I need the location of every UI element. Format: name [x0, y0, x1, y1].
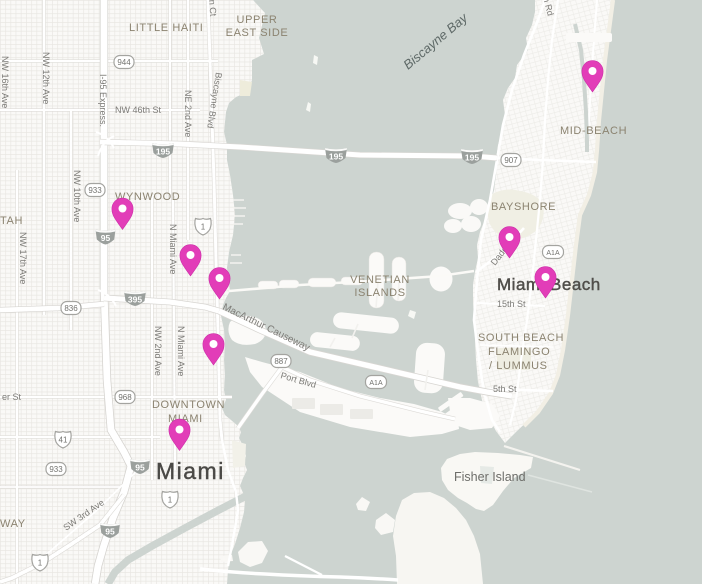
svg-text:EAST SIDE: EAST SIDE	[226, 27, 289, 39]
svg-text:887: 887	[274, 357, 288, 366]
svg-text:933: 933	[88, 186, 102, 195]
svg-text:A1A: A1A	[369, 380, 383, 387]
svg-text:NW 12th Ave: NW 12th Ave	[41, 52, 51, 104]
svg-text:WAY: WAY	[0, 518, 26, 530]
svg-text:907: 907	[504, 156, 518, 165]
svg-text:/ LUMMUS: / LUMMUS	[489, 360, 548, 372]
svg-text:95: 95	[105, 527, 115, 537]
svg-text:1: 1	[201, 223, 206, 232]
svg-text:A1A: A1A	[546, 250, 560, 257]
svg-text:95: 95	[135, 463, 145, 473]
svg-text:NW 17th Ave: NW 17th Ave	[18, 232, 28, 284]
svg-text:836: 836	[64, 304, 78, 313]
svg-text:er St: er St	[2, 392, 22, 402]
svg-text:FLAMINGO: FLAMINGO	[488, 346, 550, 358]
svg-text:TAH: TAH	[0, 215, 23, 227]
svg-text:NE 2nd Ave: NE 2nd Ave	[183, 90, 193, 137]
svg-text:LITTLE HAITI: LITTLE HAITI	[129, 22, 203, 34]
svg-text:Miami: Miami	[156, 458, 225, 484]
svg-text:944: 944	[117, 58, 131, 67]
svg-text:I-95 Express.: I-95 Express.	[98, 74, 108, 127]
svg-text:MID-BEACH: MID-BEACH	[560, 125, 627, 137]
svg-text:195: 195	[465, 153, 479, 163]
svg-text:DOWNTOWN: DOWNTOWN	[152, 399, 225, 411]
svg-text:NW 46th St: NW 46th St	[115, 105, 162, 115]
svg-text:NW 10th Ave: NW 10th Ave	[72, 170, 82, 222]
svg-text:933: 933	[49, 465, 63, 474]
svg-text:Fisher Island: Fisher Island	[454, 470, 526, 484]
svg-text:SOUTH BEACH: SOUTH BEACH	[478, 332, 564, 344]
svg-text:UPPER: UPPER	[237, 14, 278, 26]
svg-text:N Miami Ave: N Miami Ave	[168, 224, 178, 274]
svg-text:VENETIAN: VENETIAN	[350, 274, 410, 286]
svg-text:1: 1	[168, 496, 173, 505]
svg-text:N Miami Ave: N Miami Ave	[176, 326, 186, 376]
svg-text:NW 16th Ave: NW 16th Ave	[0, 56, 10, 108]
svg-text:968: 968	[118, 393, 132, 402]
svg-text:ISLANDS: ISLANDS	[354, 287, 405, 299]
svg-text:395: 395	[128, 295, 142, 305]
svg-text:5th St: 5th St	[493, 384, 517, 394]
svg-text:41: 41	[59, 436, 68, 445]
svg-text:1: 1	[38, 559, 43, 568]
svg-text:95: 95	[101, 233, 111, 243]
svg-text:NW 2nd Ave: NW 2nd Ave	[153, 326, 163, 376]
svg-text:BAYSHORE: BAYSHORE	[491, 201, 556, 213]
svg-text:195: 195	[329, 152, 343, 162]
svg-text:195: 195	[156, 147, 170, 157]
svg-text:n Ct: n Ct	[207, 0, 218, 17]
svg-text:15th St: 15th St	[497, 299, 526, 309]
